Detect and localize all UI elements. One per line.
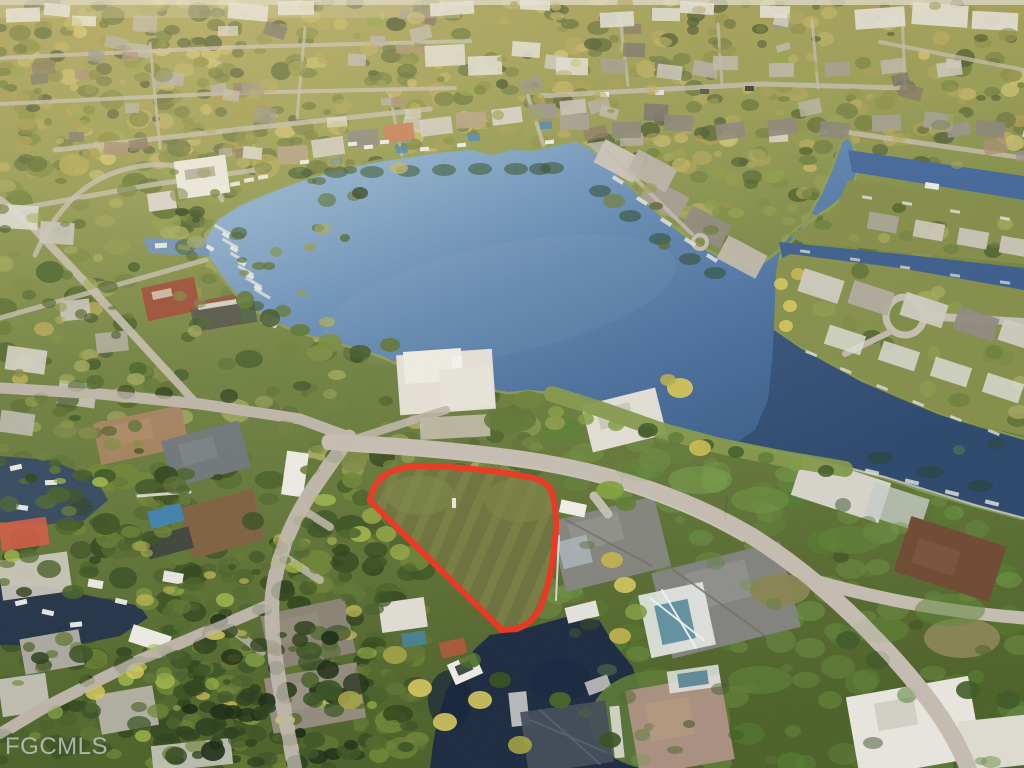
svg-text:FGCMLS: FGCMLS <box>5 733 108 760</box>
